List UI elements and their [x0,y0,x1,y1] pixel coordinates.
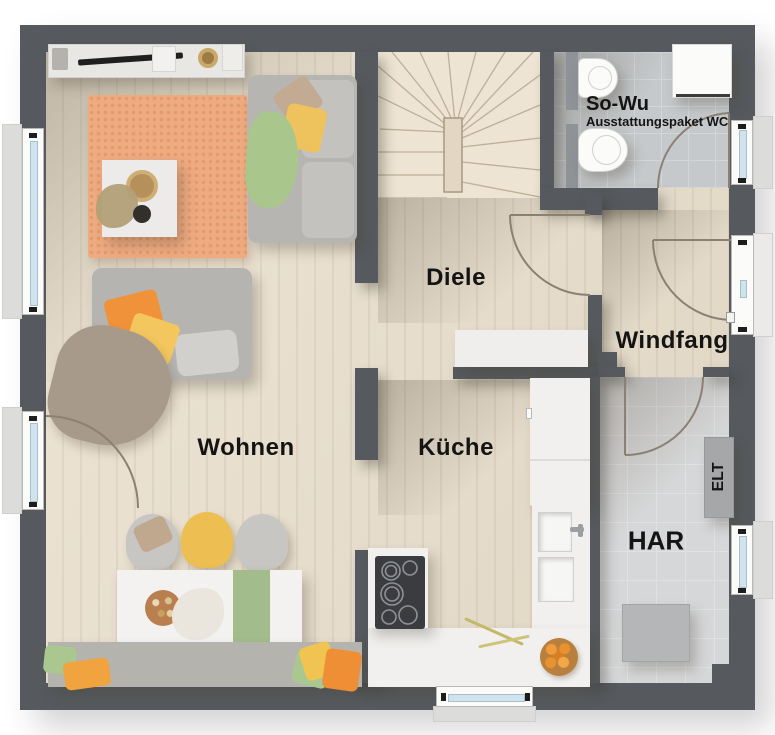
chair-yellow [181,512,233,568]
stair-newel-post [444,118,462,192]
wall-windfang-har-west [598,367,625,377]
daybed-cushion [174,329,240,377]
cabinet-handle-icon [526,408,532,419]
wall-wohnen-stairs [355,52,378,283]
toilet-seat [592,135,621,165]
room-label-wohnen: Wohnen [197,434,294,462]
entry-door-leaf [731,235,754,335]
sink-basin [538,512,572,552]
terrace-door-window [22,411,44,510]
room-label-windfang: Windfang [615,327,728,355]
wall-wohnen-kueche-upper [355,368,378,460]
room-label-diele: Diele [426,264,486,292]
wall-windfang-har-east [703,367,729,377]
kitchen-tall-cabinet [530,378,590,506]
sink-basin [538,557,574,602]
room-label-wc: So-Wu Ausstattungspaket WC [586,93,728,129]
gold-dish-icon [198,48,218,68]
room-label-kueche: Küche [418,434,494,462]
window-wc [731,120,753,185]
window-kitchen [436,686,533,707]
door-handle-icon [726,312,735,323]
wc-cabinet [672,44,732,98]
chair [236,514,288,570]
window-left-upper [22,128,44,315]
fruit-bowl-icon [540,638,578,676]
room-label-har: HAR [628,526,684,557]
window-sill [753,116,773,189]
cooktop-burners-icon [375,556,425,629]
cooktop [375,556,425,629]
window-sill [753,521,773,599]
staircase [378,52,540,198]
label-elt: ELT [710,462,728,491]
window-sill [433,706,536,722]
book-stack-icon [52,48,68,70]
pillow-orange [321,648,362,693]
hall-sideboard [455,330,588,367]
wall-stub-diele-windfang [585,193,602,215]
window-sill [2,124,22,319]
pillar-har-se [712,664,729,683]
window-har [731,525,753,595]
window-sill [2,407,22,514]
floor-plan: Wohnen Diele Küche Windfang HAR So-Wu Au… [0,0,775,735]
sofa-backrest [302,162,354,238]
wall-stairs-wc [540,52,554,200]
wc-sink-basin [588,66,612,90]
wc-label-title: So-Wu [586,93,728,115]
storage-box-icon [152,46,176,72]
cabinet-divider [530,459,590,461]
white-books-icon [222,44,243,71]
faucet-icon [578,524,583,537]
wc-label-subtitle: Ausstattungspaket WC [586,115,728,129]
washing-machine [622,604,690,662]
pillar-har-nw [598,352,617,368]
wc-plumbing-wall-sink [566,52,578,110]
wall-bottom [20,683,755,710]
wc-plumbing-wall-toilet [566,124,578,188]
vase-icon [133,205,151,223]
entry-threshold [753,233,773,337]
